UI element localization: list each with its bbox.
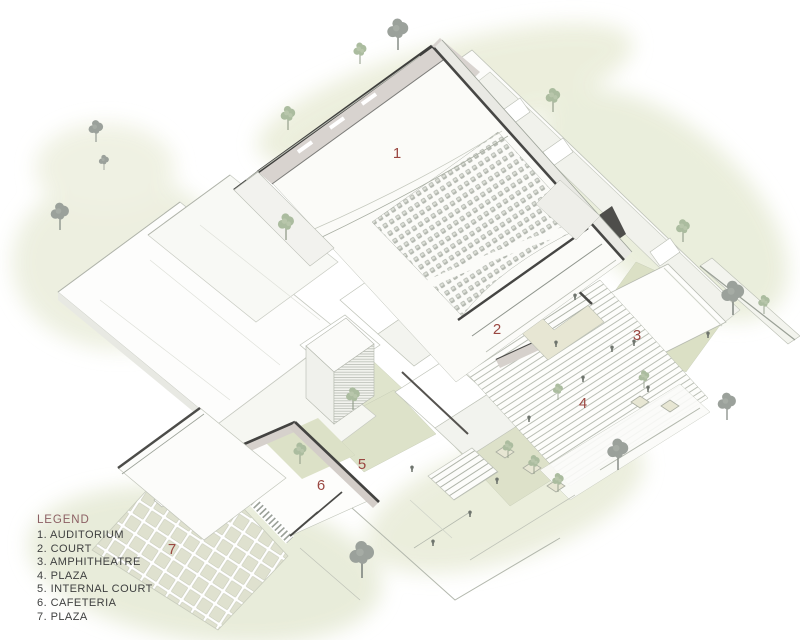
person-icon xyxy=(411,466,414,472)
tree-icon xyxy=(387,18,408,50)
marker-plaza-steps: 4 xyxy=(579,395,587,412)
legend-item-cafeteria: 6. CAFETERIA xyxy=(37,597,153,611)
marker-internal-court: 5 xyxy=(358,456,366,473)
marker-auditorium: 1 xyxy=(393,145,401,162)
axonometric-site-drawing: 1 2 3 4 5 6 7 LEGEND 1. AUDITORIUM 2. CO… xyxy=(0,0,800,640)
legend-title: LEGEND xyxy=(37,514,153,526)
marker-plaza-pavers: 7 xyxy=(168,541,176,558)
legend-item-auditorium: 1. AUDITORIUM xyxy=(37,529,153,543)
legend-item-internal-court: 5. INTERNAL COURT xyxy=(37,583,153,597)
legend-item-amphitheatre: 3. AMPHITHEATRE xyxy=(37,556,153,570)
legend-item-court: 2. COURT xyxy=(37,543,153,557)
marker-cafeteria: 6 xyxy=(317,477,325,494)
tree-icon xyxy=(353,42,366,64)
legend-item-plaza: 4. PLAZA xyxy=(37,570,153,584)
legend-item-plaza2: 7. PLAZA xyxy=(37,611,153,625)
tree-icon xyxy=(718,393,736,420)
legend: LEGEND 1. AUDITORIUM 2. COURT 3. AMPHITH… xyxy=(37,514,153,624)
marker-court: 2 xyxy=(493,321,501,338)
marker-amphitheatre: 3 xyxy=(633,327,641,344)
